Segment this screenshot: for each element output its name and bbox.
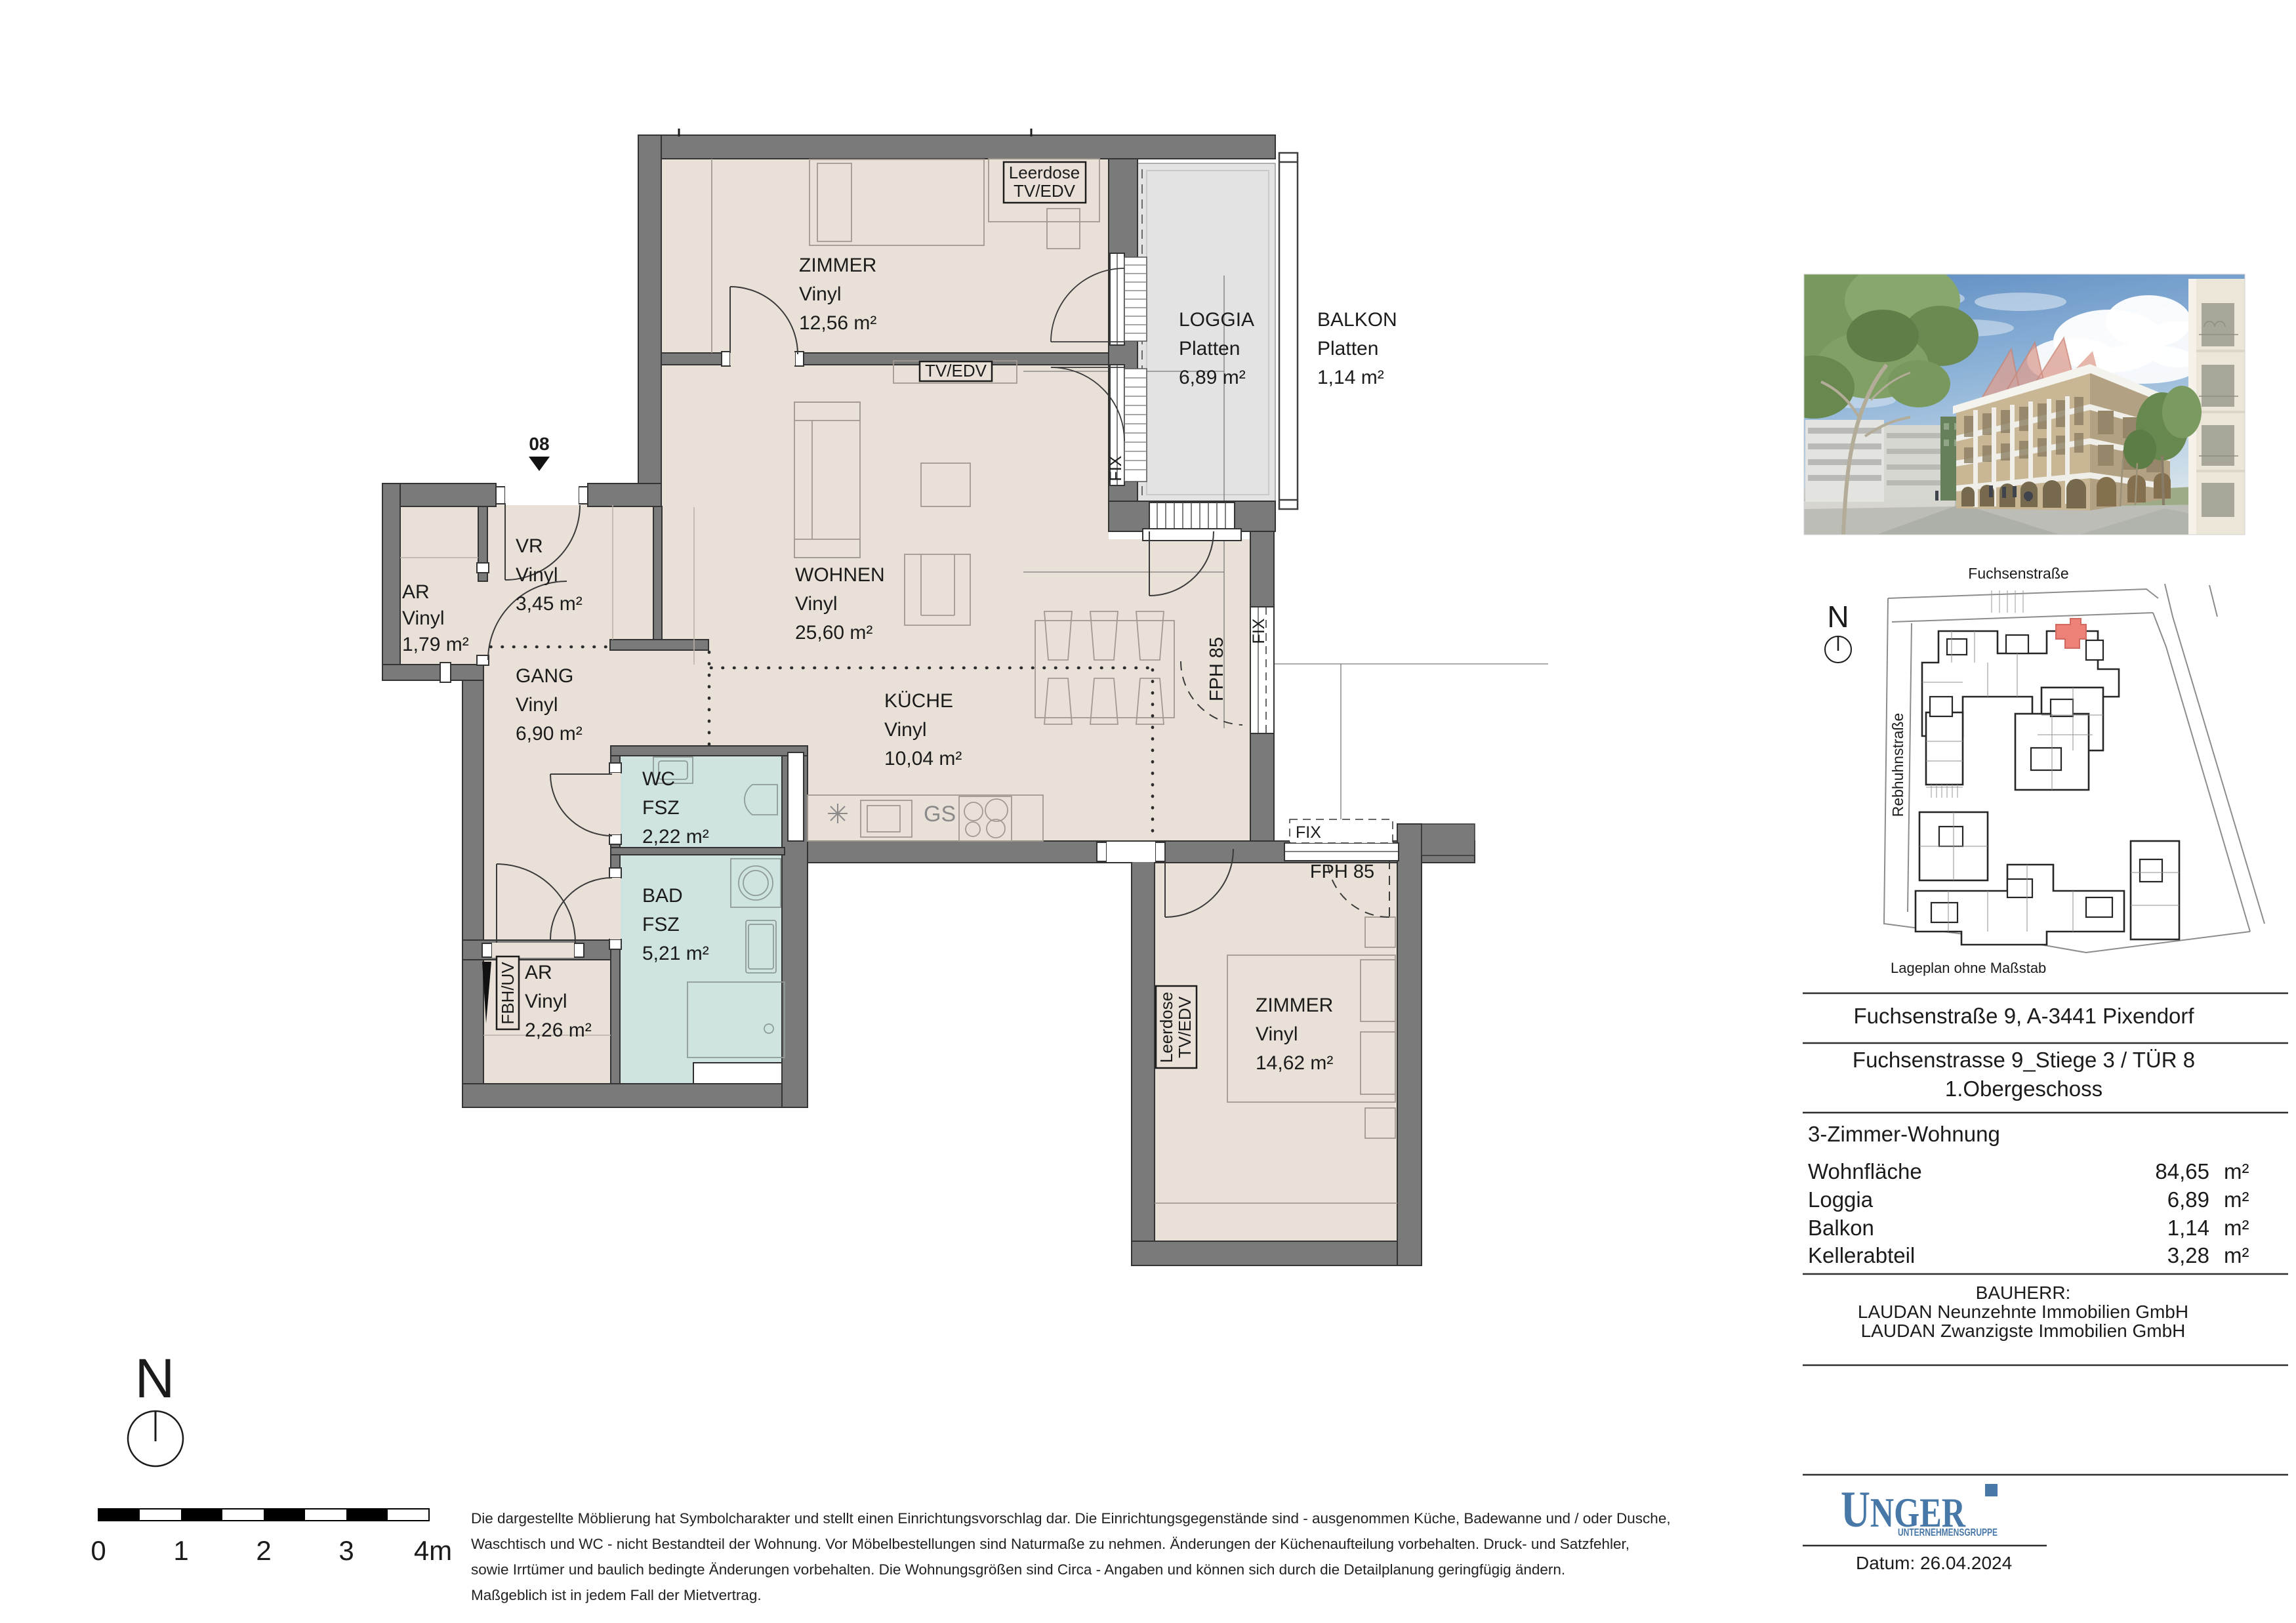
svg-text:Balkon: Balkon: [1808, 1216, 1874, 1240]
svg-text:25,60 m²: 25,60 m²: [795, 622, 872, 644]
svg-text:Vinyl: Vinyl: [525, 991, 567, 1012]
svg-text:LAUDAN Zwanzigste Immobilien G: LAUDAN Zwanzigste Immobilien GmbH: [1861, 1321, 2186, 1341]
svg-text:Vinyl: Vinyl: [795, 593, 837, 615]
svg-text:FSZ: FSZ: [642, 797, 680, 819]
svg-text:1: 1: [173, 1535, 188, 1566]
svg-text:5,21 m²: 5,21 m²: [642, 943, 709, 964]
svg-text:1.Obergeschoss: 1.Obergeschoss: [1945, 1077, 2102, 1101]
svg-text:3,45 m²: 3,45 m²: [516, 593, 583, 615]
svg-text:Vinyl: Vinyl: [516, 564, 558, 586]
svg-text:FIX: FIX: [1250, 618, 1268, 644]
svg-text:1,79 m²: 1,79 m²: [402, 634, 469, 655]
svg-text:Vinyl: Vinyl: [516, 694, 558, 716]
svg-text:ZIMMER: ZIMMER: [799, 255, 876, 276]
svg-text:Platten: Platten: [1179, 338, 1240, 360]
svg-text:LOGGIA: LOGGIA: [1179, 309, 1254, 331]
svg-text:BAUHERR:: BAUHERR:: [1976, 1283, 2071, 1303]
svg-text:Vinyl: Vinyl: [1256, 1023, 1298, 1045]
svg-text:Datum: 26.04.2024: Datum: 26.04.2024: [1856, 1553, 2012, 1573]
svg-text:FIX: FIX: [1107, 455, 1125, 481]
svg-text:BAD: BAD: [642, 885, 683, 907]
svg-text:KÜCHE: KÜCHE: [884, 690, 953, 712]
svg-text:VR: VR: [516, 535, 543, 557]
svg-text:sowie Irrtümer und baulich bed: sowie Irrtümer und baulich bedingte Ände…: [471, 1561, 1565, 1578]
svg-text:1,14: 1,14: [2167, 1216, 2209, 1240]
svg-text:TV/EDV: TV/EDV: [1014, 181, 1076, 201]
svg-text:TV/EDV: TV/EDV: [1175, 996, 1195, 1058]
svg-text:FSZ: FSZ: [642, 914, 680, 935]
svg-text:3-Zimmer-Wohnung: 3-Zimmer-Wohnung: [1808, 1122, 2000, 1146]
svg-text:Wohnfläche: Wohnfläche: [1808, 1159, 1922, 1183]
svg-text:2,22 m²: 2,22 m²: [642, 826, 709, 848]
svg-text:84,65: 84,65: [2155, 1159, 2209, 1183]
svg-text:GS: GS: [924, 802, 956, 827]
svg-text:6,90 m²: 6,90 m²: [516, 723, 583, 745]
svg-text:Die dargestellte Möblierung ha: Die dargestellte Möblierung hat Symbolch…: [471, 1510, 1671, 1527]
svg-text:2,26 m²: 2,26 m²: [525, 1019, 592, 1041]
svg-text:6,89 m²: 6,89 m²: [1179, 367, 1246, 388]
svg-text:TV/EDV: TV/EDV: [925, 361, 987, 380]
svg-text:Vinyl: Vinyl: [799, 283, 841, 305]
svg-text:WOHNEN: WOHNEN: [795, 564, 885, 586]
svg-text:4m: 4m: [414, 1535, 452, 1566]
svg-text:Lageplan ohne Maßstab: Lageplan ohne Maßstab: [1891, 960, 2046, 976]
svg-text:08: 08: [529, 434, 549, 454]
svg-text:FIX: FIX: [1296, 823, 1321, 842]
svg-text:Waschtisch und WC - nicht Best: Waschtisch und WC - nicht Bestandteil de…: [471, 1536, 1630, 1552]
svg-text:FPH 85: FPH 85: [1206, 637, 1227, 701]
svg-text:Fuchsenstrasse 9_Stiege 3 / TÜ: Fuchsenstrasse 9_Stiege 3 / TÜR 8: [1853, 1048, 2195, 1072]
svg-text:ZIMMER: ZIMMER: [1256, 995, 1333, 1016]
svg-text:14,62 m²: 14,62 m²: [1256, 1052, 1333, 1074]
svg-text:Vinyl: Vinyl: [884, 719, 926, 741]
svg-text:AR: AR: [525, 962, 552, 983]
svg-text:3,28: 3,28: [2167, 1243, 2209, 1267]
svg-text:Fuchsenstraße: Fuchsenstraße: [1968, 565, 2068, 582]
svg-text:0: 0: [91, 1535, 106, 1566]
svg-text:WC: WC: [642, 768, 675, 790]
svg-text:m²: m²: [2224, 1187, 2249, 1212]
svg-text:1,14 m²: 1,14 m²: [1317, 367, 1384, 388]
svg-text:Leerdose: Leerdose: [1157, 992, 1176, 1063]
svg-text:GANG: GANG: [516, 665, 573, 687]
svg-text:BALKON: BALKON: [1317, 309, 1397, 331]
svg-text:Vinyl: Vinyl: [402, 607, 444, 629]
svg-text:FBH/UV: FBH/UV: [498, 962, 518, 1025]
svg-text:2: 2: [256, 1535, 271, 1566]
svg-text:Leerdose: Leerdose: [1009, 163, 1080, 182]
svg-text:m²: m²: [2224, 1159, 2249, 1183]
svg-text:3: 3: [338, 1535, 354, 1566]
svg-text:N: N: [135, 1347, 175, 1409]
svg-text:6,89: 6,89: [2167, 1187, 2209, 1212]
svg-text:12,56 m²: 12,56 m²: [799, 312, 876, 334]
svg-text:Maßgeblich ist in jedem Fall d: Maßgeblich ist in jedem Fall der Mietver…: [471, 1587, 762, 1603]
svg-text:m²: m²: [2224, 1216, 2249, 1240]
svg-text:m²: m²: [2224, 1243, 2249, 1267]
svg-text:AR: AR: [402, 581, 430, 603]
svg-text:N: N: [1827, 600, 1849, 634]
svg-text:FPH 85: FPH 85: [1310, 861, 1374, 882]
svg-text:Fuchsenstraße 9, A-3441 Pixend: Fuchsenstraße 9, A-3441 Pixendorf: [1853, 1004, 2194, 1028]
svg-text:Rebhuhnstraße: Rebhuhnstraße: [1889, 713, 1906, 817]
svg-text:Kellerabteil: Kellerabteil: [1808, 1243, 1915, 1267]
svg-text:Loggia: Loggia: [1808, 1187, 1874, 1212]
svg-text:LAUDAN Neunzehnte Immobilien G: LAUDAN Neunzehnte Immobilien GmbH: [1858, 1302, 2188, 1322]
svg-text:UNTERNEHMENSGRUPPE: UNTERNEHMENSGRUPPE: [1898, 1527, 1998, 1538]
svg-text:10,04 m²: 10,04 m²: [884, 748, 962, 770]
svg-text:Platten: Platten: [1317, 338, 1378, 360]
